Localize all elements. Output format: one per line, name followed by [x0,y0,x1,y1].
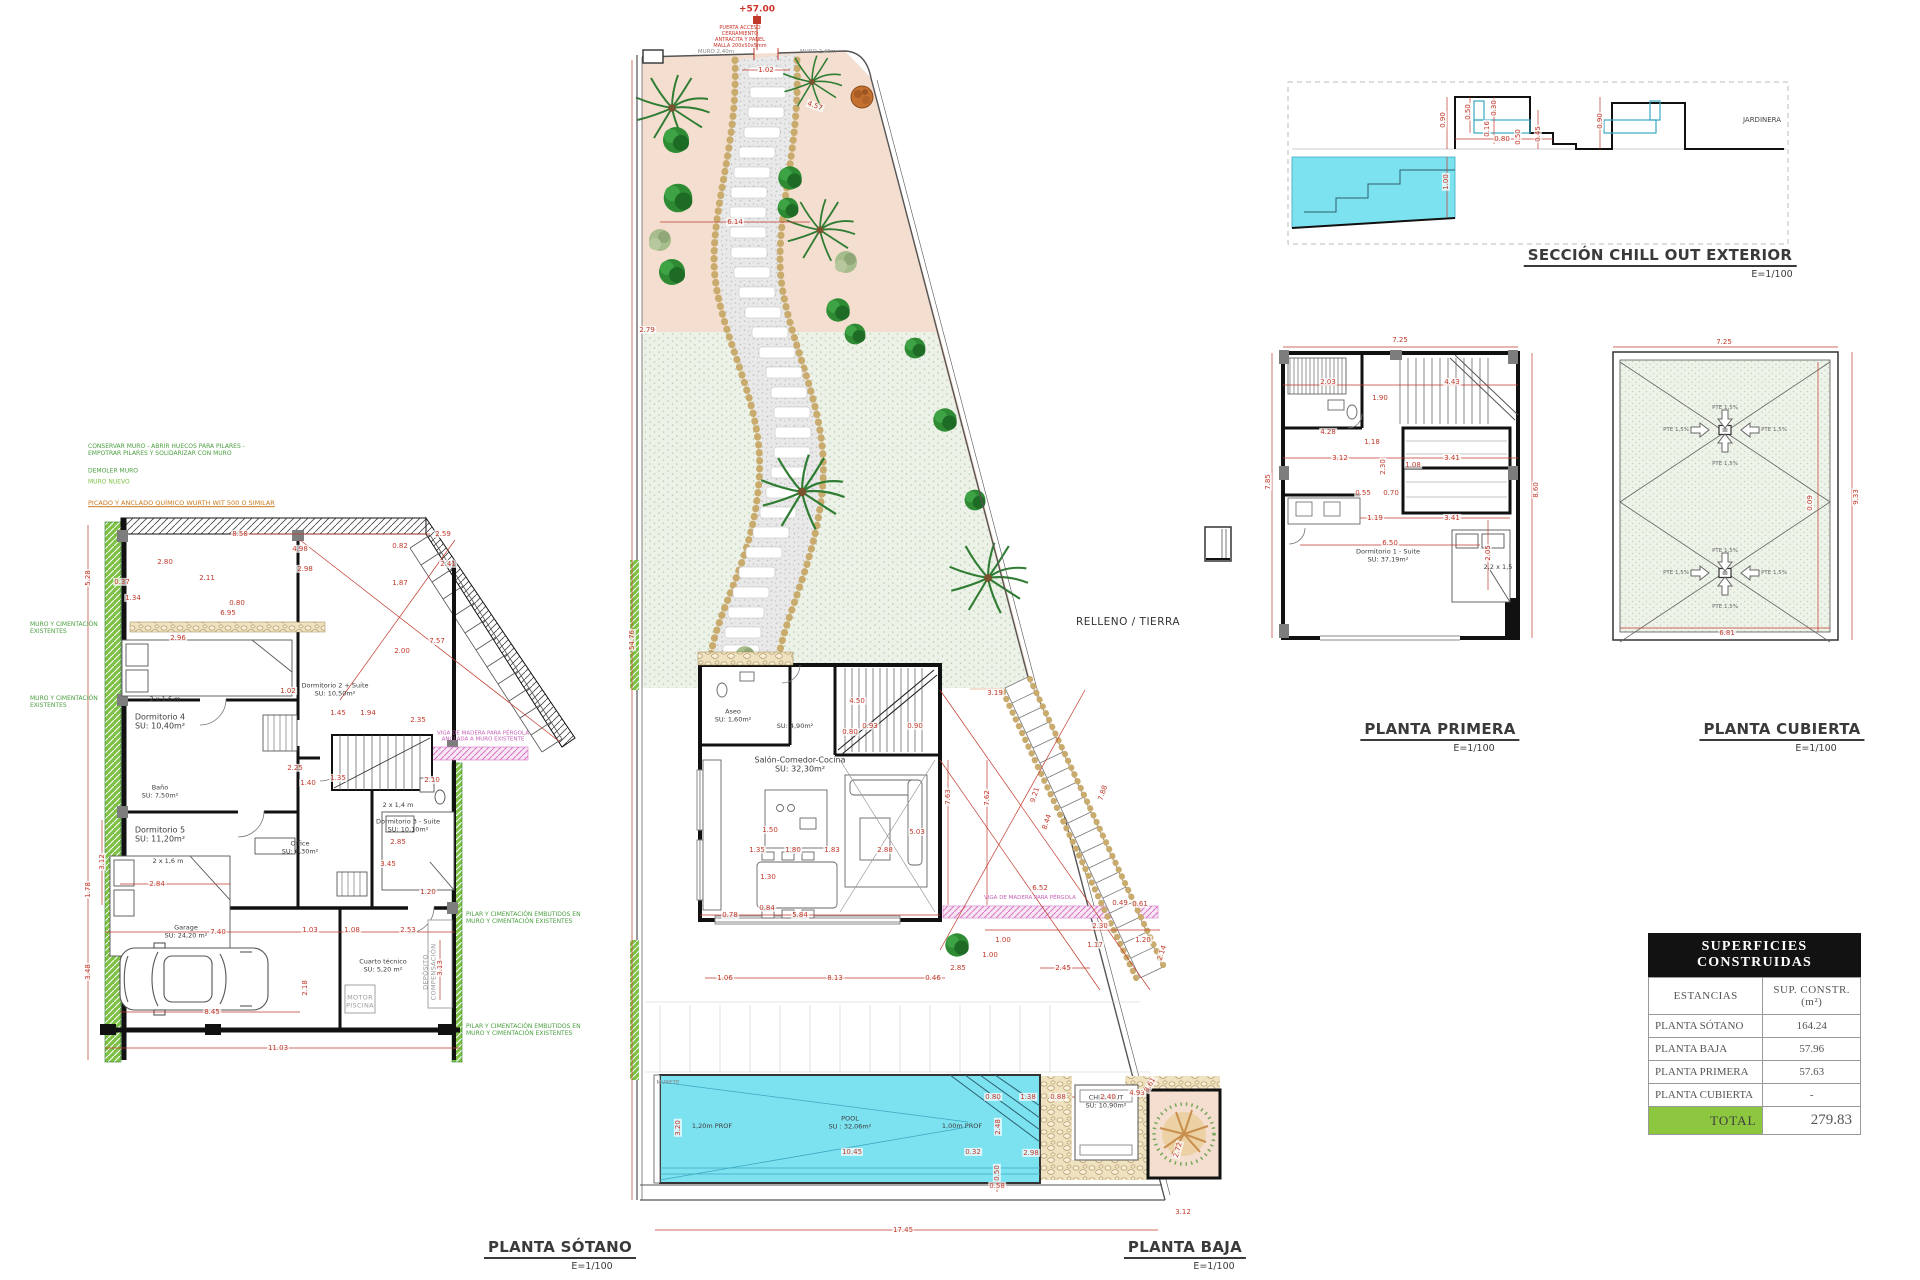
label: 5.84 [791,911,809,919]
label: 0.80 [1493,135,1511,143]
label: VIGA DE MADERA PARA PÉRGOLA ANCLADA A MU… [437,731,529,744]
table-header-row: ESTANCIAS SUP. CONSTR. (m²) [1649,978,1861,1015]
label: 10.45 [841,1148,863,1156]
superficies-table: SUPERFICIES CONSTRUIDAS ESTANCIAS SUP. C… [1648,933,1861,1135]
label: 0.32 [964,1148,982,1156]
label: 2.03 [1319,378,1337,386]
label: 1.18 [1363,438,1381,446]
label: +57.00 [739,5,775,16]
label: 9.33 [1852,488,1860,506]
label: 1.78 [84,881,92,899]
title-planta-primera: PLANTA PRIMERA [1360,720,1519,741]
label: 0.90 [1596,112,1604,130]
label: Dormitorio 4 SU: 10,40m² [135,713,185,732]
label: 4.98 [291,545,309,553]
label: 2.48 [994,1118,1002,1136]
label: 0.58 [988,1182,1006,1190]
col-header-estancias: ESTANCIAS [1649,978,1763,1015]
col-header-sup: SUP. CONSTR. (m²) [1763,978,1861,1015]
label: MURO 2,40m [800,49,836,55]
table-row: PLANTA PRIMERA57.63 [1649,1061,1861,1084]
label: 0.50 [1464,103,1472,121]
label: 2.85 [389,838,407,846]
scale-seccion: E=1/100 [1751,269,1792,280]
label: Cuarto técnico SU: 5,20 m² [359,958,407,973]
label: 2.98 [296,565,314,573]
cell-value: - [1763,1084,1861,1107]
label: 1.08 [1404,461,1422,469]
label: 8.58 [231,530,249,538]
label: 1.20 [419,888,437,896]
title-planta-baja: PLANTA BAJA [1124,1238,1246,1259]
label: 0.30 [1490,99,1498,117]
label: PUERTA ACCESO CERRAMIENTO ANTRACITA Y PA… [713,26,766,50]
label: 1.35 [748,846,766,854]
label: 4.50 [848,697,866,705]
label: PTE 1,5% [1712,461,1738,467]
label: Dormitorio 3 - Suite SU: 10,10m² [376,818,440,833]
label: CHILL OUT SU: 10,90m² [1086,1094,1127,1109]
table-total-row: TOTAL 279.83 [1649,1107,1861,1135]
label: 3.12 [98,853,106,871]
label: 1.87 [391,579,409,587]
label: 6.95 [219,609,237,617]
label: 1.30 [759,873,777,881]
label: 4.57 [805,99,824,113]
label: 5.03 [908,828,926,836]
label: 2.85 [949,964,967,972]
label: MURO Y CIMENTACIÓN EXISTENTES [30,695,98,709]
label: 2.72 [1172,1140,1185,1159]
label: 3.48 [84,963,92,981]
label: 2 x 1,4 m [383,802,414,810]
cell-estancia: PLANTA CUBIERTA [1649,1084,1763,1107]
label: 2.14 [1155,943,1168,962]
label: 3.12 [1174,1208,1192,1216]
label: 1.00 [1442,173,1450,191]
label: JARDINERA [1743,116,1781,124]
label: 2.79 [638,326,656,334]
label: 0.93 [861,722,879,730]
label: PTE 1,5% [1761,427,1787,433]
areas-table-body: PLANTA SÓTANO164.24PLANTA BAJA57.96PLANT… [1649,1015,1861,1107]
label: 11.03 [267,1044,289,1052]
title-seccion: SECCIÓN CHILL OUT EXTERIOR [1524,246,1797,267]
label: PTE 1,5% [1761,570,1787,576]
label: 1,00m PROF [942,1123,982,1131]
cell-value: 57.96 [1763,1038,1861,1061]
label: 8.60 [1532,481,1540,499]
label: 7.25 [1391,336,1409,344]
labels-layer: CONSERVAR MURO - ABRIR HUECOS PARA PILAR… [0,0,1920,1280]
label: 2.88 [876,846,894,854]
label: 1.00 [981,951,999,959]
label: 3.41 [1443,514,1461,522]
label: VIGA DE MADERA PARA PÉRGOLA [984,895,1076,901]
cell-value: 57.63 [1763,1061,1861,1084]
label: 0.55 [1354,489,1372,497]
label: 3.13 [436,959,444,977]
label: 6.50 [1381,539,1399,547]
label: 1.06 [716,974,734,982]
label: 2.30 [1379,458,1387,476]
label: 2.05 [1484,544,1492,562]
label: 4.43 [1443,378,1461,386]
label: 1.03 [301,926,319,934]
label: Dormitorio 2 + Suite SU: 10,50m² [301,682,368,697]
label: 7.63 [944,788,952,806]
label: PTE 1,5% [1712,548,1738,554]
label: 3.12 [1331,454,1349,462]
label: PTE 1,5% [1663,427,1689,433]
label: Aseo SU: 1,60m² [715,708,752,723]
label: 1.08 [343,926,361,934]
label: 1.02 [757,66,775,74]
label: 0.16 [1483,120,1491,138]
label: 0.46 [924,974,942,982]
label: 0.50 [1514,128,1522,146]
label: 1.90 [1371,394,1389,402]
label: 2.30 [1091,922,1109,930]
label: 2,2 x 1,5 [1484,564,1513,572]
label: 2.96 [169,634,187,642]
label: MURETE [657,1080,680,1086]
table-row: PLANTA SÓTANO164.24 [1649,1015,1861,1038]
cell-value: 164.24 [1763,1015,1861,1038]
label: 2.10 [423,776,441,784]
label: 2.11 [198,574,216,582]
label: 1.94 [359,709,377,717]
label: 2.35 [409,716,427,724]
label: 1,20m PROF [692,1123,732,1131]
label: 17.45 [892,1226,914,1234]
label: 1.83 [823,846,841,854]
scale-planta-baja: E=1/100 [1193,1261,1234,1272]
label: PILAR Y CIMENTACIÓN EMBUTIDOS EN MURO Y … [466,1023,581,1037]
label: 2.98 [1022,1149,1040,1157]
label: 2.80 [156,558,174,566]
label: MURO NUEVO [88,478,130,485]
label: 2.40 [1099,1093,1117,1101]
label: POOL SU : 32,06m² [829,1115,872,1130]
label: 0.78 [721,911,739,919]
label: 0.80 [228,599,246,607]
label: 0.90 [1439,111,1447,129]
drawing-sheet: CONSERVAR MURO - ABRIR HUECOS PARA PILAR… [0,0,1920,1280]
label: 1.38 [1019,1093,1037,1101]
table-title: SUPERFICIES CONSTRUIDAS [1648,933,1861,977]
title-planta-cubierta: PLANTA CUBIERTA [1699,720,1864,741]
label: 0.84 [758,904,776,912]
label: 2.00 [393,647,411,655]
cell-estancia: PLANTA PRIMERA [1649,1061,1763,1084]
label: 2.84 [148,880,166,888]
label: PICADO Y ANCLADO QUÍMICO WURTH WIT 500 O… [88,500,275,508]
label: MURO Y CIMENTACIÓN EXISTENTES [30,621,98,635]
label: 7.85 [1264,473,1272,491]
label: 0.80 [984,1093,1002,1101]
label: 2 x 1,6 m [153,858,184,866]
label: 0.45 [1534,125,1542,143]
total-value: 279.83 [1763,1107,1861,1135]
label: 3.20 [674,1119,682,1137]
label: DEPÓSITO COMPENSACIÓN [422,944,437,1001]
label: 6.14 [726,218,744,226]
table-row: PLANTA CUBIERTA- [1649,1084,1861,1107]
scale-planta-primera: E=1/100 [1453,743,1494,754]
label: 7.25 [1715,338,1733,346]
label: 3.19 [986,689,1004,697]
label: PTE 1,5% [1712,405,1738,411]
label: 54.76 [628,629,636,651]
label: 3.41 [1443,454,1461,462]
label: 1.50 [761,826,779,834]
label: 1.19 [1366,514,1384,522]
label: 2.25 [286,764,304,772]
label: 6.81 [1718,629,1736,637]
label: 8.45 [203,1008,221,1016]
label: 2.45 [1054,964,1072,972]
label: 0.61 [1131,900,1149,908]
label: 0.88 [1049,1093,1067,1101]
scale-planta-sotano: E=1/100 [571,1261,612,1272]
label: RELLENO / TIERRA [1076,616,1180,628]
label: 0.09 [1806,494,1814,512]
label: 3.45 [379,860,397,868]
label: 6.52 [1031,884,1049,892]
label: 1.35 [329,774,347,782]
label: DEMOLER MURO [88,467,138,474]
label: 7.62 [983,789,991,807]
label: 1.45 [329,709,347,717]
label: 9.21 [1028,785,1041,804]
label: 1.00 [994,936,1012,944]
label: 1.17 [1086,941,1104,949]
label: 8.61 [1142,1075,1158,1094]
label: SU: 4,90m² [777,723,814,731]
label: 0.37 [113,578,131,586]
label: 7.57 [428,637,446,645]
label: 7.40 [209,928,227,936]
label: 0.82 [391,542,409,550]
label: PTE 1,5% [1712,604,1738,610]
title-planta-sotano: PLANTA SÓTANO [484,1238,636,1259]
label: CONSERVAR MURO - ABRIR HUECOS PARA PILAR… [88,443,245,457]
cell-estancia: PLANTA SÓTANO [1649,1015,1763,1038]
label: 0.90 [906,722,924,730]
label: Dormitorio 1 - Suite SU: 37,19m² [1356,548,1420,563]
label: 1.20 [1134,936,1152,944]
cell-estancia: PLANTA BAJA [1649,1038,1763,1061]
label: PTE 1,5% [1663,570,1689,576]
label: 4.93 [1128,1089,1146,1097]
label: Baño SU: 7,50m² [142,784,179,799]
label: 8.13 [826,974,844,982]
label: 1.80 [784,846,802,854]
label: 8.44 [1040,812,1053,831]
label: 1.40 [299,779,317,787]
label: PILAR Y CIMENTACIÓN EMBUTIDOS EN MURO Y … [466,911,581,925]
total-label: TOTAL [1649,1107,1763,1135]
label: 0.49 [1111,899,1129,907]
label: 2.53 [399,926,417,934]
label: 4.28 [1319,428,1337,436]
label: 2 x 1,6 m [150,696,181,704]
label: Office SU: 6,30m² [282,840,319,855]
label: 5.28 [84,569,92,587]
table-row: PLANTA BAJA57.96 [1649,1038,1861,1061]
label: 2.59 [434,530,452,538]
label: Dormitorio 5 SU: 11,20m² [135,826,185,845]
label: 0.80 [841,728,859,736]
label: 0.70 [1382,489,1400,497]
label: 2.41 [439,560,457,568]
label: 0.50 [993,1164,1001,1182]
label: MOTOR PISCINA [346,994,374,1009]
label: 1.02 [279,687,297,695]
label: MURO 2,40m [698,49,734,55]
scale-planta-cubierta: E=1/100 [1795,743,1836,754]
label: Salón-Comedor-Cocina SU: 32,30m² [755,756,846,775]
label: 7.88 [1096,783,1109,802]
label: 2.18 [301,979,309,997]
label: 1.34 [124,594,142,602]
label: Garage SU: 24,20 m² [165,924,208,939]
